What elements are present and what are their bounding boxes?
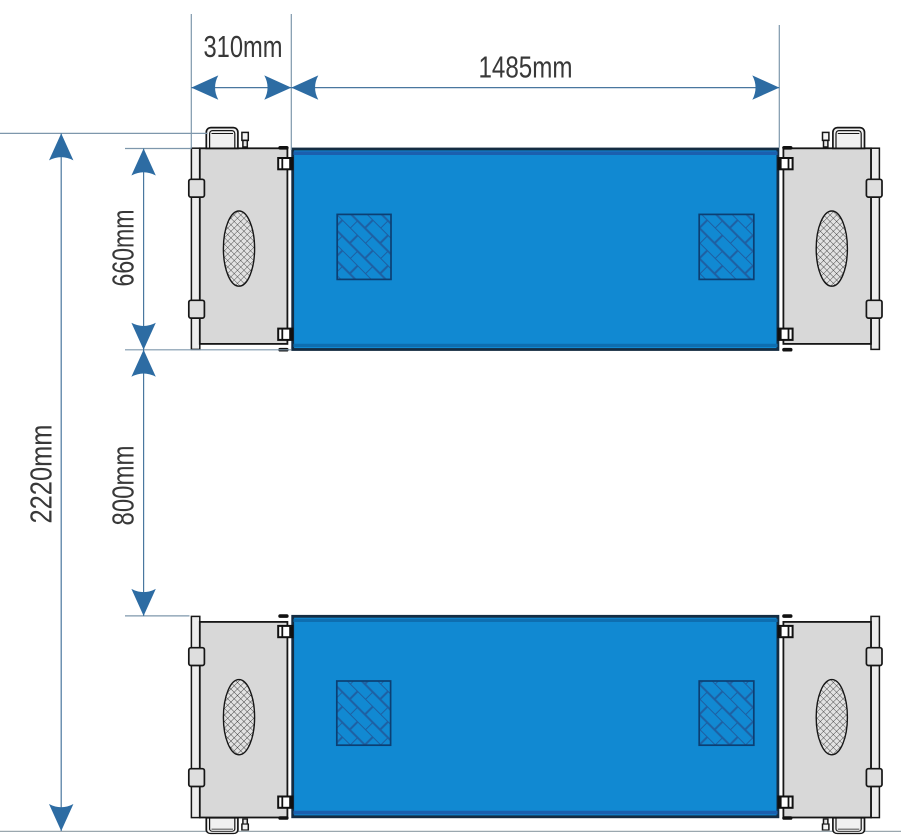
svg-text:800mm: 800mm [107,446,141,526]
svg-text:2220mm: 2220mm [25,425,59,524]
svg-text:310mm: 310mm [204,30,283,64]
svg-text:660mm: 660mm [107,210,141,287]
svg-text:1485mm: 1485mm [479,50,573,84]
